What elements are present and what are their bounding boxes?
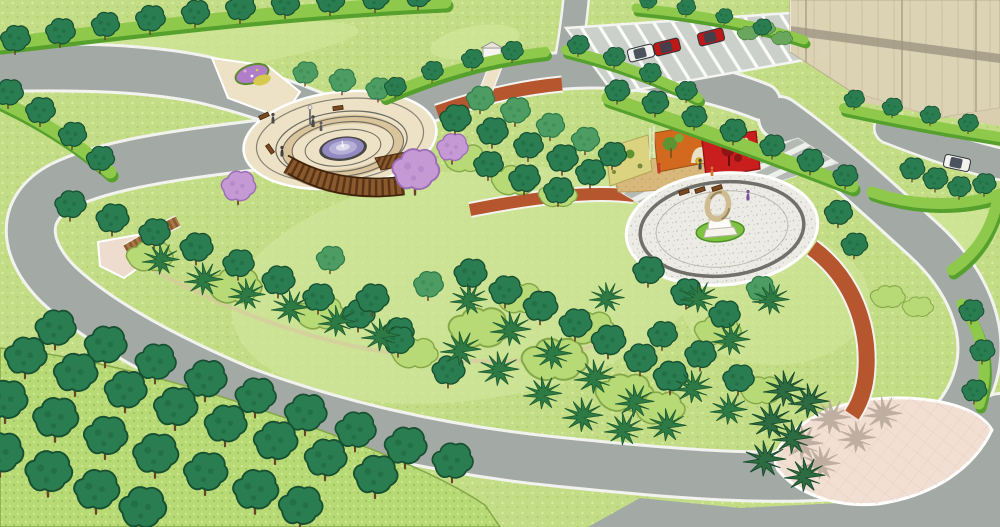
person — [711, 167, 714, 176]
park-rendering: Park landscape design - aerial 3D render… — [0, 0, 1000, 527]
person — [657, 163, 660, 174]
person — [311, 115, 315, 127]
park-scene: Park landscape design - aerial 3D render… — [0, 0, 1000, 527]
person — [271, 113, 274, 124]
bench — [333, 105, 343, 110]
person — [746, 190, 749, 201]
person — [280, 146, 283, 157]
person — [698, 159, 701, 170]
person — [320, 122, 323, 131]
